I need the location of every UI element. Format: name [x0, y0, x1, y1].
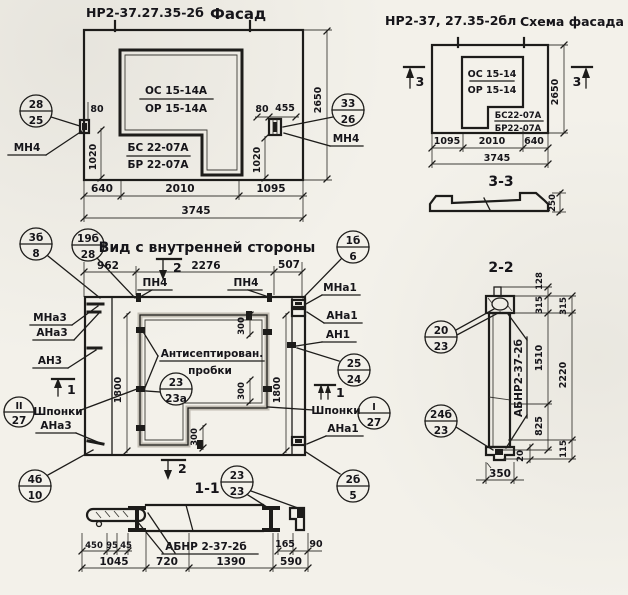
callout-top: 20 — [434, 325, 449, 337]
dim-80-left: 80 — [90, 104, 104, 115]
dim-1390: 1390 — [216, 556, 245, 568]
dim-315: 315 — [559, 297, 569, 315]
callout-bottom: 10 — [28, 490, 43, 502]
dim-455: 455 — [275, 103, 295, 114]
drawing-canvas: НР2-37.27.35-2б Фасад ОС 15-14А ОР 15-14… — [0, 0, 628, 595]
callout-bottom: 28 — [81, 249, 96, 261]
facade-window-mark: ОС 15-14А ОР 15-14А — [140, 85, 213, 115]
section-mark-label: 3 — [573, 74, 582, 89]
dim-128: 128 — [535, 272, 545, 290]
section-marker-1-right: 1 — [315, 384, 345, 400]
section-2-2-title: 2-2 — [488, 260, 513, 276]
drawing-sheet: НР2-37.27.35-2б Фасад ОС 15-14А ОР 15-14… — [0, 0, 628, 595]
callout-24b-23: 24б 23 — [425, 405, 493, 450]
mna3-label: МНа3 — [30, 306, 98, 325]
section-2-2: 2-2 20 23 24б 23 — [425, 260, 576, 484]
section-1-1-product-label: АБНР 2-37-2б — [137, 513, 258, 554]
svg-text:АН3: АН3 — [38, 355, 62, 367]
product-label: АБНР 2-37-2б — [165, 541, 247, 553]
callout-top: 4б — [28, 474, 43, 486]
callout-bottom: 25 — [29, 115, 44, 127]
callout-top: II — [15, 401, 22, 412]
inner-view-top-dims: 962 2276 507 — [81, 259, 305, 297]
svg-text:Шпонки: Шпонки — [311, 405, 360, 417]
schema-window-mark: ОС 15-14 ОР 15-14 — [468, 69, 517, 96]
callout-top: 19б — [77, 233, 99, 245]
dim-300: 300 — [190, 428, 200, 446]
callout-bottom: 24 — [347, 374, 362, 386]
dim-115: 115 — [559, 440, 569, 458]
section-marker-2-bottom: 2 — [162, 460, 187, 480]
dim-1510: 1510 — [534, 344, 545, 371]
callout-top: 33 — [341, 98, 356, 110]
panel-mark-top: БС22-07А — [495, 111, 542, 121]
schema-panel-mark: БС22-07А БР22-07А — [495, 111, 543, 134]
dim-590: 590 — [280, 556, 302, 568]
svg-text:АНа1: АНа1 — [327, 423, 358, 435]
pn4-label-right: ПН4 — [228, 277, 269, 297]
dim-45: 45 — [120, 541, 132, 551]
section-mark-label: 2 — [173, 260, 182, 275]
callout-I-27: I 27 — [358, 397, 390, 429]
section-1-1-title: 1-1 — [194, 481, 219, 497]
inner-view-drawing: 3б 8 19б 28 Вид с внутренней стороны 962… — [4, 228, 390, 502]
ana1-label-top: АНа1 — [307, 310, 362, 323]
facade-anchor-label-right: МН4 — [284, 133, 363, 146]
dim-640: 640 — [91, 183, 113, 195]
dim-1800: 1800 — [272, 376, 283, 403]
callout-bottom: 23 — [230, 486, 245, 498]
callout-II-27: II 27 — [4, 397, 34, 427]
dim-90: 90 — [309, 539, 323, 550]
section-3-3: 3-3 250 — [430, 174, 566, 215]
dim-720: 720 — [156, 556, 178, 568]
dim-300: 300 — [237, 317, 247, 335]
dim-450: 450 — [85, 541, 103, 551]
window-mark-top: ОС 15-14А — [145, 85, 208, 97]
section-mark-label: 1 — [336, 385, 345, 400]
callout-25-24: 25 24 — [297, 348, 370, 386]
callout-top: 2б — [346, 474, 361, 486]
inner-view-title: Вид с внутренней стороны — [99, 240, 316, 256]
dim-3745: 3745 — [181, 205, 210, 217]
antiseptic-line1: Антисептирован. — [161, 348, 264, 360]
callout-top: 3б — [29, 232, 44, 244]
product-label: АБНР2-37-2б — [513, 339, 525, 417]
callout-top: I — [372, 402, 376, 413]
dim-2010: 2010 — [165, 183, 194, 195]
section-3-3-title: 3-3 — [488, 174, 513, 190]
dim-1095: 1095 — [434, 136, 460, 147]
ana3-label-bottom: АНа3 — [36, 420, 100, 443]
dim-1045: 1045 — [99, 556, 128, 568]
antiseptic-note: Антисептирован. пробки — [142, 330, 264, 390]
callout-2b-5: 2б 5 — [306, 452, 369, 502]
callout-top: 28 — [29, 99, 44, 111]
facade-panel-mark: БС 22-07А БР 22-07А — [127, 142, 190, 171]
section-mark-label: 3 — [416, 74, 425, 89]
dim-3745: 3745 — [484, 153, 510, 164]
section-marker-3-right: 3 — [572, 67, 592, 89]
callout-top: 25 — [347, 358, 362, 370]
callout-bottom: 26 — [341, 114, 356, 126]
window-mark-top: ОС 15-14 — [468, 69, 517, 80]
dim-300: 300 — [237, 382, 247, 400]
facade-linework — [80, 21, 303, 180]
pn4-label: ПН4 — [234, 277, 259, 289]
section-1-1: 2 1-1 23 23 — [79, 460, 323, 572]
dim-350: 350 — [489, 468, 511, 480]
panel-mark-bottom: БР 22-07А — [127, 159, 189, 171]
callout-28-25: 28 25 — [20, 95, 80, 127]
schema-drawing: НР2-37, 27.35-2бл Схема фасада ОС 15-14 … — [385, 13, 624, 168]
callout-23-23a: 23 23а — [146, 373, 192, 405]
window-mark-bottom: ОР 15-14 — [468, 85, 517, 96]
callout-bottom: 23 — [434, 425, 449, 437]
callout-bottom: 6 — [349, 251, 356, 263]
facade-title-word: Фасад — [210, 5, 266, 23]
mn4-label: МН4 — [333, 133, 360, 145]
schema-title-word: Схема фасада — [520, 14, 624, 29]
svg-text:АНа3: АНа3 — [36, 327, 67, 339]
dim-962: 962 — [97, 260, 119, 272]
dim-315: 315 — [535, 296, 545, 314]
section-1-1-linework — [87, 505, 304, 532]
dim-80-right: 80 — [255, 104, 269, 115]
section-mark-label: 2 — [178, 461, 187, 476]
callout-bottom: 27 — [12, 415, 27, 427]
callout-bottom: 23а — [165, 393, 187, 405]
callout-bottom: 27 — [367, 417, 382, 429]
section-marker-1-left: 1 — [52, 378, 76, 397]
svg-text:АНа3: АНа3 — [40, 420, 71, 432]
svg-text:АН1: АН1 — [326, 329, 350, 341]
section-2-2-dims: 128 315 1510 825 315 2220 115 20 — [476, 272, 576, 484]
dim-250: 250 — [548, 194, 558, 212]
dim-640: 640 — [524, 136, 544, 147]
callout-top: 23 — [169, 377, 184, 389]
callout-bottom: 5 — [349, 490, 356, 502]
dim-95: 95 — [106, 541, 118, 551]
shponki-label-right: Шпонки — [268, 405, 361, 417]
callout-4b-10: 4б 10 — [19, 450, 93, 502]
dim-2276: 2276 — [191, 260, 220, 272]
dim-2650: 2650 — [550, 78, 561, 105]
callout-bottom: 8 — [32, 248, 39, 260]
facade-anchor-label-left: МН4 — [8, 131, 82, 155]
dim-1095: 1095 — [256, 183, 285, 195]
svg-text:АНа1: АНа1 — [326, 310, 357, 322]
panel-mark-top: БС 22-07А — [127, 142, 189, 154]
dim-2220: 2220 — [558, 361, 569, 388]
dim-2650: 2650 — [313, 86, 324, 113]
dim-1020-left: 1020 — [88, 143, 99, 170]
an3-label: АН3 — [33, 350, 96, 368]
ana1-label-bottom: АНа1 — [307, 423, 363, 444]
mn4-label: МН4 — [14, 142, 41, 154]
dim-1020-right: 1020 — [252, 146, 263, 173]
dim-1800: 1800 — [113, 376, 124, 403]
callout-bottom: 23 — [434, 341, 449, 353]
callout-top: 23 — [230, 470, 245, 482]
dim-825: 825 — [534, 416, 545, 436]
svg-text:Шпонки: Шпонки — [33, 406, 82, 418]
pn4-label: ПН4 — [143, 277, 168, 289]
section-marker-3-left: 3 — [404, 67, 424, 89]
panel-mark-bottom: БР22-07А — [495, 124, 542, 134]
callout-top: 24б — [430, 409, 452, 421]
svg-text:МНа1: МНа1 — [323, 282, 357, 294]
dim-20: 20 — [516, 450, 526, 462]
schema-title-code: НР2-37, 27.35-2бл — [385, 13, 516, 28]
callout-top: 1б — [346, 235, 361, 247]
pn4-label-left: ПН4 — [138, 277, 172, 297]
dim-2010: 2010 — [479, 136, 506, 147]
antiseptic-line2: пробки — [188, 365, 232, 377]
section-3-3-profile — [430, 193, 548, 211]
dim-507: 507 — [278, 259, 300, 271]
facade-title-code: НР2-37.27.35-2б — [86, 5, 204, 20]
section-mark-label: 1 — [67, 382, 76, 397]
window-mark-bottom: ОР 15-14А — [145, 103, 208, 115]
svg-text:МНа3: МНа3 — [33, 312, 67, 324]
dim-165: 165 — [275, 539, 295, 550]
callout-23-23: 23 23 — [221, 466, 298, 509]
mna1-label: МНа1 — [306, 282, 360, 304]
facade-drawing: НР2-37.27.35-2б Фасад ОС 15-14А ОР 15-14… — [8, 5, 364, 222]
